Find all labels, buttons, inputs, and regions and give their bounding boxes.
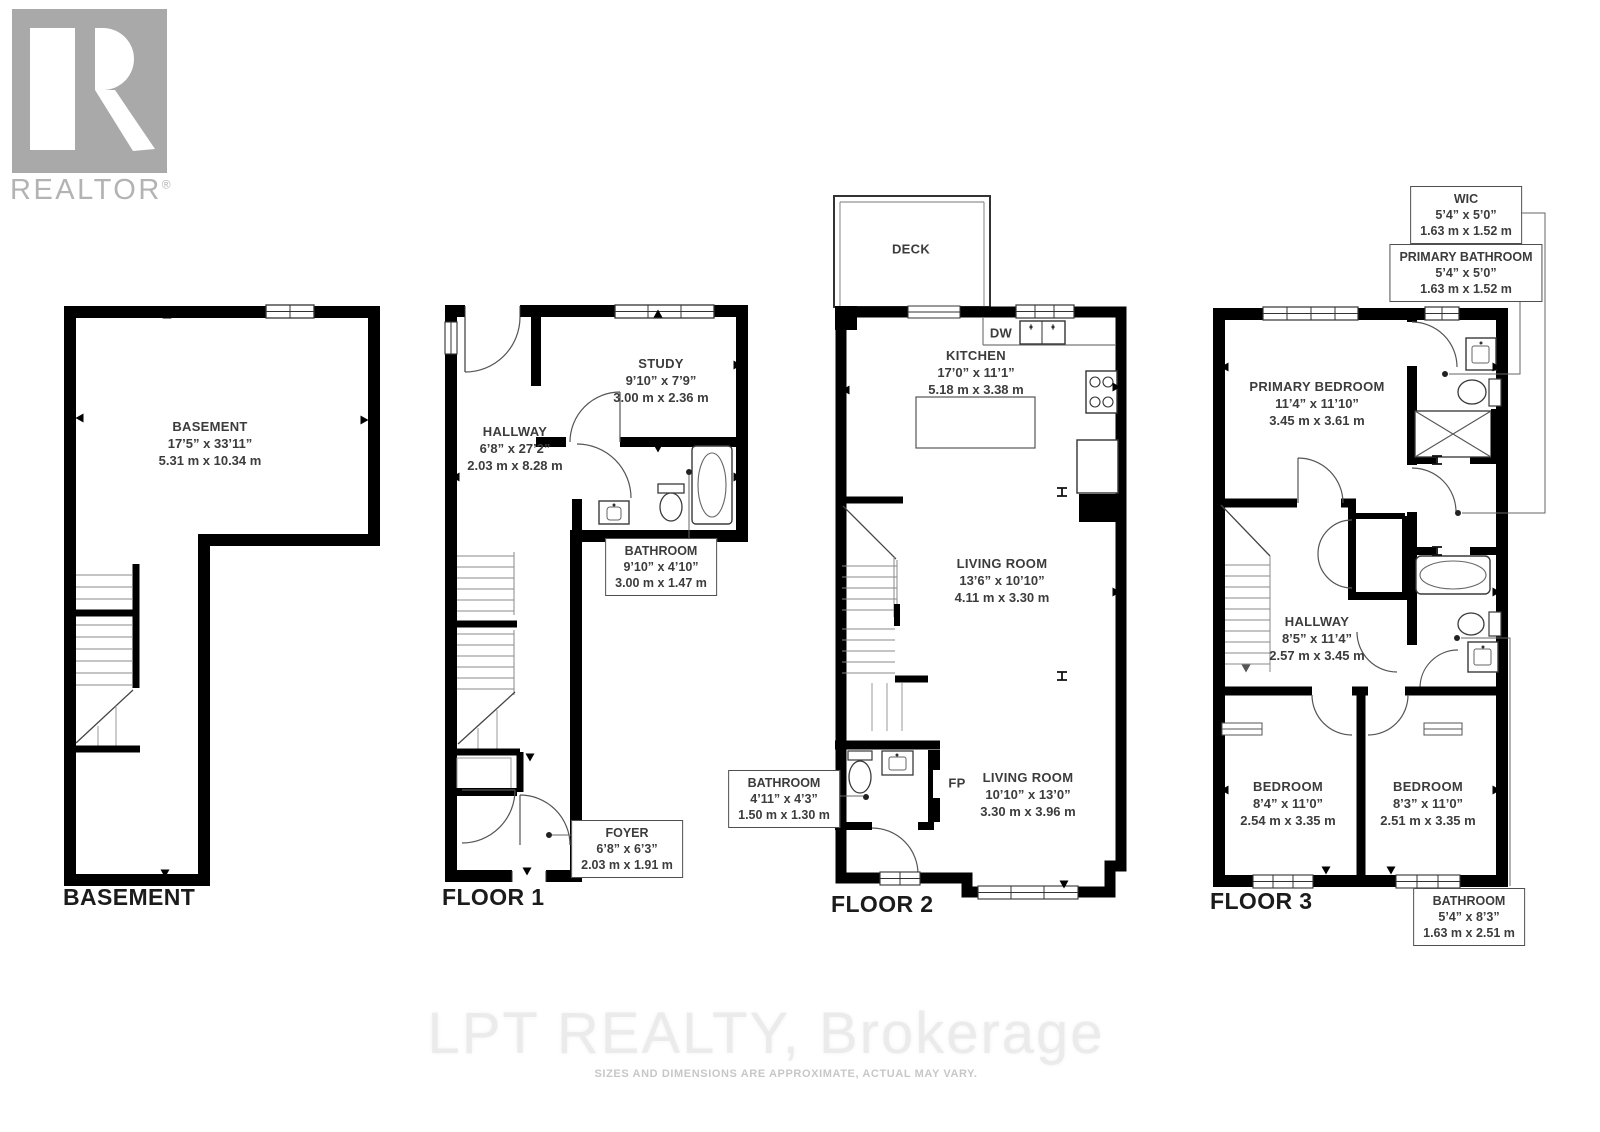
room-dim-imperial: 8’5” x 11’4”: [1269, 630, 1364, 647]
dishwasher-label: DW: [990, 326, 1012, 341]
toilet-icon: [1458, 379, 1501, 406]
sliding-door-icon: [908, 306, 960, 318]
window-icon: [445, 322, 457, 354]
room-dim-metric: 5.31 m x 10.34 m: [159, 452, 262, 469]
fridge-icon: [1077, 440, 1118, 493]
room-dim-imperial: 17’5” x 33’11”: [159, 435, 262, 452]
realtor-wordmark: REALTOR: [10, 174, 162, 206]
disclaimer-text: SIZES AND DIMENSIONS ARE APPROXIMATE, AC…: [594, 1068, 977, 1080]
room-dim-metric: 2.57 m x 3.45 m: [1269, 647, 1364, 664]
floor-title-floor3: FLOOR 3: [1210, 888, 1312, 915]
floorplan-page: REALTOR® BASEMENT 17’5” x 33’11” 5.31 m …: [0, 0, 1600, 1132]
room-label-bathroom-f3: BATHROOM 5’4” x 8’3” 1.63 m x 2.51 m: [1413, 888, 1525, 946]
room-name: BEDROOM: [1240, 778, 1335, 795]
toilet-icon: [658, 484, 684, 521]
realtor-logo-text: REALTOR®: [10, 174, 173, 207]
room-label-bedroom-right: BEDROOM 8’3” x 11’0” 2.51 m x 3.35 m: [1380, 778, 1475, 829]
room-label-foyer: FOYER 6’8” x 6’3” 2.03 m x 1.91 m: [571, 820, 683, 878]
room-label-primary-bathroom: PRIMARY BATHROOM 5’4” x 5’0” 1.63 m x 1.…: [1389, 244, 1542, 302]
room-name: HALLWAY: [1269, 613, 1364, 630]
room-name: BATHROOM: [738, 775, 830, 791]
room-dim-imperial: 5’4” x 8’3”: [1423, 909, 1515, 925]
room-name: BATHROOM: [1423, 893, 1515, 909]
room-dim-imperial: 9’10” x 7’9”: [613, 372, 708, 389]
sink-icon: [1468, 642, 1498, 672]
room-dim-metric: 2.03 m x 8.28 m: [467, 457, 562, 474]
registered-mark: ®: [162, 177, 173, 191]
room-dim-metric: 3.00 m x 2.36 m: [613, 389, 708, 406]
floor2-plan: [826, 196, 1121, 899]
room-dim-imperial: 8’4” x 11’0”: [1240, 795, 1335, 812]
room-label-primary-bedroom: PRIMARY BEDROOM 11’4” x 11’10” 3.45 m x …: [1249, 378, 1384, 429]
room-dim-metric: 1.50 m x 1.30 m: [738, 807, 830, 823]
room-label-hallway-f1: HALLWAY 6’8” x 27’2” 2.03 m x 8.28 m: [467, 423, 562, 474]
room-dim-imperial: 17’0” x 11’1”: [928, 364, 1023, 381]
room-dim-imperial: 11’4” x 11’10”: [1249, 395, 1384, 412]
room-dim-imperial: 6’8” x 27’2”: [467, 440, 562, 457]
room-label-study: STUDY 9’10” x 7’9” 3.00 m x 2.36 m: [613, 355, 708, 406]
room-name: BEDROOM: [1380, 778, 1475, 795]
fireplace-label: FP: [948, 776, 965, 791]
room-dim-metric: 2.51 m x 3.35 m: [1380, 812, 1475, 829]
door-opening: [512, 870, 546, 883]
room-label-basement: BASEMENT 17’5” x 33’11” 5.31 m x 10.34 m: [159, 418, 262, 469]
room-dim-metric: 4.11 m x 3.30 m: [955, 589, 1050, 606]
room-label-living-lower: LIVING ROOM 10’10” x 13’0” 3.30 m x 3.96…: [980, 769, 1075, 820]
room-label-bathroom-f2: BATHROOM 4’11” x 4’3” 1.50 m x 1.30 m: [728, 770, 840, 828]
room-label-wic: WIC 5’4” x 5’0” 1.63 m x 1.52 m: [1410, 186, 1522, 244]
room-dim-imperial: 10’10” x 13’0”: [980, 786, 1075, 803]
floorplan-drawing: [0, 0, 1600, 1132]
room-dim-metric: 3.30 m x 3.96 m: [980, 803, 1075, 820]
room-label-kitchen: KITCHEN 17’0” x 11’1” 5.18 m x 3.38 m: [928, 347, 1023, 398]
window-icon: [880, 872, 920, 885]
window-icon: [1016, 305, 1074, 318]
room-name: STUDY: [613, 355, 708, 372]
stove-icon: [1086, 371, 1117, 413]
deck-label: DECK: [892, 242, 930, 257]
room-name: PRIMARY BATHROOM: [1399, 249, 1532, 265]
room-name: LIVING ROOM: [955, 555, 1050, 572]
room-name: WIC: [1420, 191, 1512, 207]
room-dim-imperial: 5’4” x 5’0”: [1399, 265, 1532, 281]
room-name: FOYER: [581, 825, 673, 841]
room-dim-metric: 5.18 m x 3.38 m: [928, 381, 1023, 398]
window-icon: [978, 886, 1078, 899]
room-name: KITCHEN: [928, 347, 1023, 364]
kitchen-sink-icon: [1020, 321, 1065, 344]
room-dim-metric: 1.63 m x 1.52 m: [1399, 281, 1532, 297]
brokerage-watermark: LPT REALTY, Brokerage: [427, 1000, 1104, 1067]
bathtub-icon: [1416, 556, 1490, 594]
room-dim-imperial: 8’3” x 11’0”: [1380, 795, 1475, 812]
room-name: PRIMARY BEDROOM: [1249, 378, 1384, 395]
sink-icon: [599, 501, 629, 524]
room-dim-imperial: 9’10” x 4’10”: [615, 559, 707, 575]
kitchen-island: [916, 397, 1035, 448]
room-name: BATHROOM: [615, 543, 707, 559]
floor-title-floor1: FLOOR 1: [442, 884, 544, 911]
basement-plan: [70, 305, 374, 880]
room-label-living-upper: LIVING ROOM 13’6” x 10’10” 4.11 m x 3.30…: [955, 555, 1050, 606]
room-dim-imperial: 5’4” x 5’0”: [1420, 207, 1512, 223]
sink-icon: [1466, 338, 1496, 370]
sink-icon: [882, 751, 913, 775]
room-name: LIVING ROOM: [980, 769, 1075, 786]
room-dim-metric: 2.03 m x 1.91 m: [581, 857, 673, 873]
room-label-bathroom-f1: BATHROOM 9’10” x 4’10” 3.00 m x 1.47 m: [605, 538, 717, 596]
toilet-icon: [848, 751, 872, 793]
room-label-hallway-f3: HALLWAY 8’5” x 11’4” 2.57 m x 3.45 m: [1269, 613, 1364, 664]
room-dim-metric: 1.63 m x 2.51 m: [1423, 925, 1515, 941]
room-label-bedroom-left: BEDROOM 8’4” x 11’0” 2.54 m x 3.35 m: [1240, 778, 1335, 829]
room-dim-metric: 3.45 m x 3.61 m: [1249, 412, 1384, 429]
shower-icon: [1415, 409, 1503, 459]
window-icon: [615, 305, 714, 318]
room-dim-metric: 1.63 m x 1.52 m: [1420, 223, 1512, 239]
room-dim-metric: 3.00 m x 1.47 m: [615, 575, 707, 591]
room-dim-imperial: 6’8” x 6’3”: [581, 841, 673, 857]
room-dim-imperial: 13’6” x 10’10”: [955, 572, 1050, 589]
toilet-icon: [1458, 612, 1501, 636]
window-icon: [266, 305, 314, 318]
room-name: BASEMENT: [159, 418, 262, 435]
room-name: HALLWAY: [467, 423, 562, 440]
realtor-logo: [12, 9, 167, 178]
floor-title-basement: BASEMENT: [63, 884, 195, 911]
bathtub-icon: [692, 446, 732, 524]
room-dim-imperial: 4’11” x 4’3”: [738, 791, 830, 807]
floor-title-floor2: FLOOR 2: [831, 891, 933, 918]
room-dim-metric: 2.54 m x 3.35 m: [1240, 812, 1335, 829]
realtor-logo-mark: [12, 9, 167, 173]
